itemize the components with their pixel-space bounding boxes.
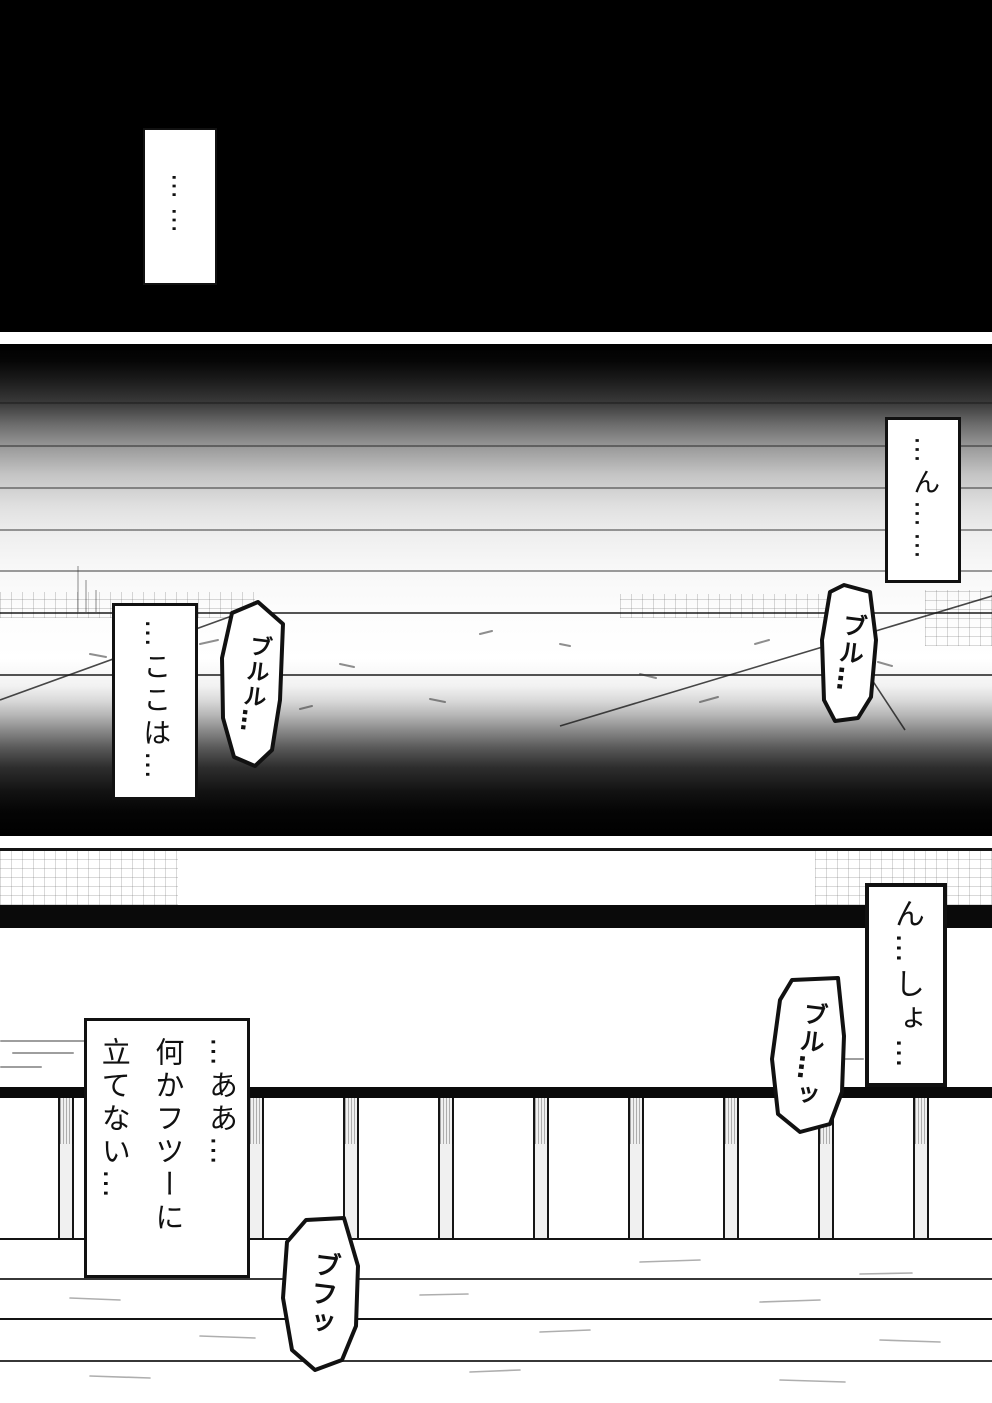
- caption-text-aa: …ああ… 何かフツーに 立てない…: [87, 1037, 248, 1235]
- crosshatch-texture: [925, 590, 992, 646]
- sfx-bubble-bufu: ブフッ: [278, 1214, 364, 1374]
- caption-box-aa: …ああ… 何かフツーに 立てない…: [84, 1018, 250, 1278]
- caption-text-nsho: ん…しょ…: [879, 898, 933, 1073]
- wood-grain: [12, 1052, 74, 1054]
- wood-grain: [0, 1066, 42, 1068]
- panel-bottom: ん…しょ… ブル…ッ …ああ… 何かフツーに 立てない… ブフッ: [0, 848, 992, 1403]
- caption-text-silence: ……: [157, 173, 204, 241]
- caption-line: 何かフツーに: [140, 1037, 194, 1235]
- caption-box-silence: ……: [143, 128, 217, 285]
- caption-box-nsho: ん…しょ…: [865, 883, 947, 1087]
- sfx-bubble-buru-2: ブル…ッ: [768, 974, 850, 1136]
- caption-line: 立てない…: [87, 1037, 141, 1235]
- caption-text-hmm: …ん……: [899, 436, 948, 564]
- panel-middle: …ん…… ブル… …ここは… ブルル…: [0, 344, 992, 836]
- caption-box-kokowa: …ここは…: [112, 603, 198, 800]
- caption-box-hmm: …ん……: [885, 417, 961, 583]
- caption-line: …ああ…: [194, 1037, 248, 1235]
- wood-grain: [0, 1040, 92, 1042]
- caption-text-kokowa: …ここは…: [130, 619, 180, 784]
- panel-top: ……: [0, 0, 992, 332]
- panel-gutter-1: [0, 332, 992, 344]
- crosshatch-texture: [0, 851, 178, 905]
- wall-black-bar-upper: [0, 905, 992, 928]
- sfx-bubble-bururu: ブルル…: [218, 598, 288, 770]
- panel-gutter-2: [0, 836, 992, 848]
- manga-page: ……: [0, 0, 992, 1403]
- sfx-bubble-buru: ブル…: [818, 582, 882, 724]
